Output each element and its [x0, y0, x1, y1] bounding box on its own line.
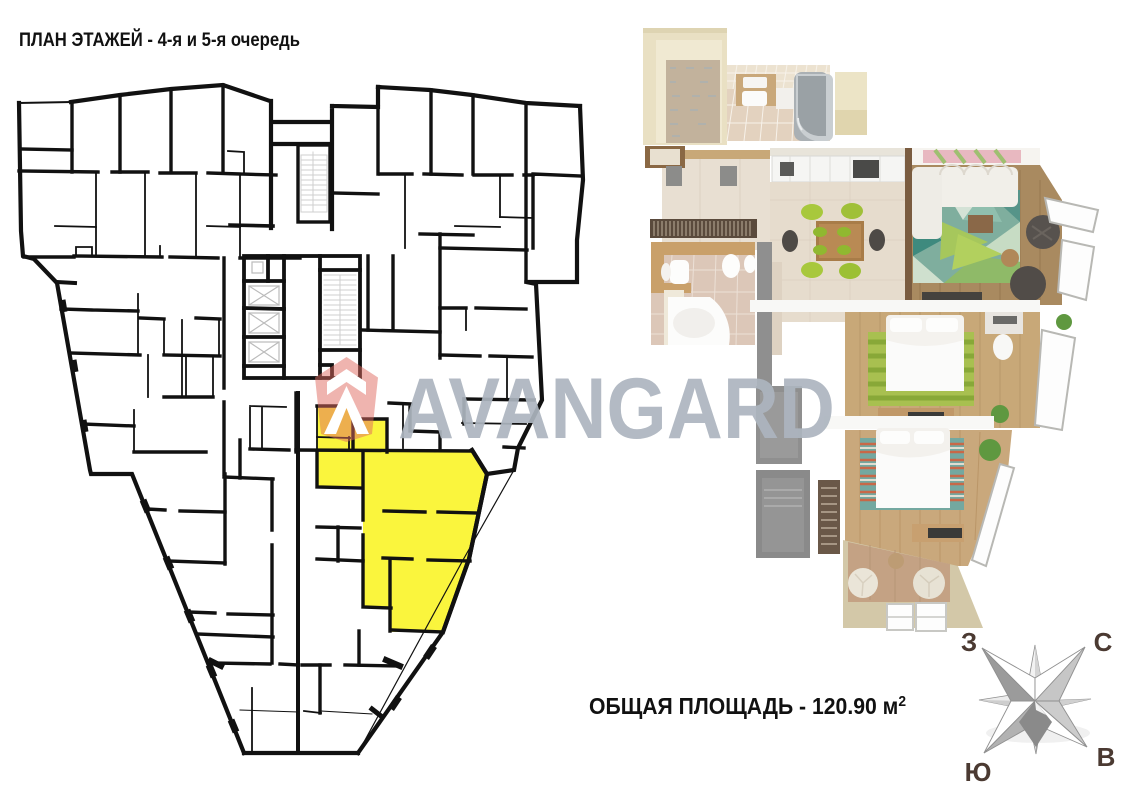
svg-text:В: В — [1097, 742, 1116, 772]
svg-text:AVANGARD: AVANGARD — [398, 361, 835, 457]
svg-text:З: З — [961, 627, 977, 657]
svg-text:С: С — [1094, 627, 1113, 657]
svg-text:Ю: Ю — [965, 757, 992, 787]
svg-text:ОБЩАЯ ПЛОЩАДЬ - 120.90 м2: ОБЩАЯ ПЛОЩАДЬ - 120.90 м2 — [589, 693, 906, 719]
svg-text:ПЛАН ЭТАЖЕЙ - 4-я и 5-я очеред: ПЛАН ЭТАЖЕЙ - 4-я и 5-я очередь — [19, 29, 300, 51]
